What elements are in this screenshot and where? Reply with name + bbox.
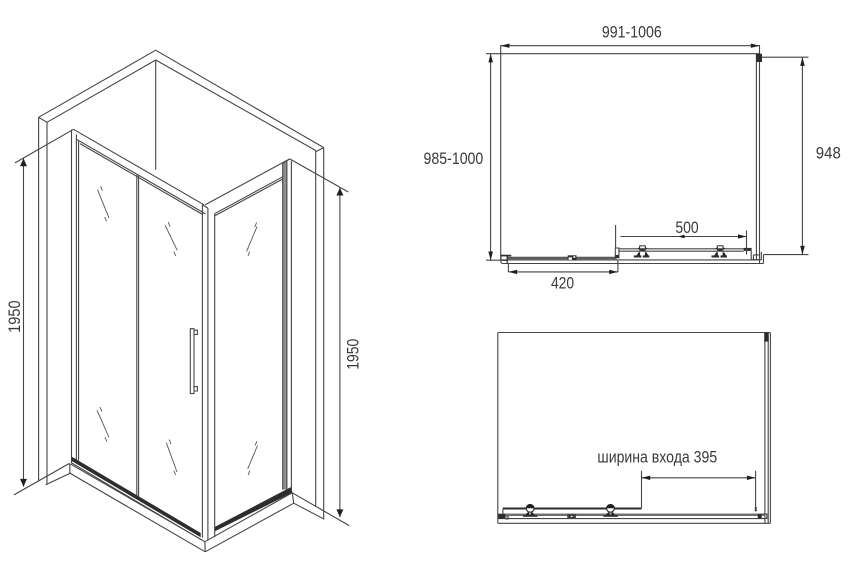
svg-text:420: 420: [551, 274, 574, 293]
svg-text:500: 500: [675, 218, 698, 237]
svg-text:1950: 1950: [5, 300, 24, 333]
svg-text:ширина входа 395: ширина входа 395: [597, 447, 717, 466]
svg-text:991-1006: 991-1006: [602, 22, 662, 41]
svg-text:985-1000: 985-1000: [424, 149, 484, 168]
svg-text:1950: 1950: [344, 339, 363, 370]
svg-text:948: 948: [816, 143, 841, 162]
